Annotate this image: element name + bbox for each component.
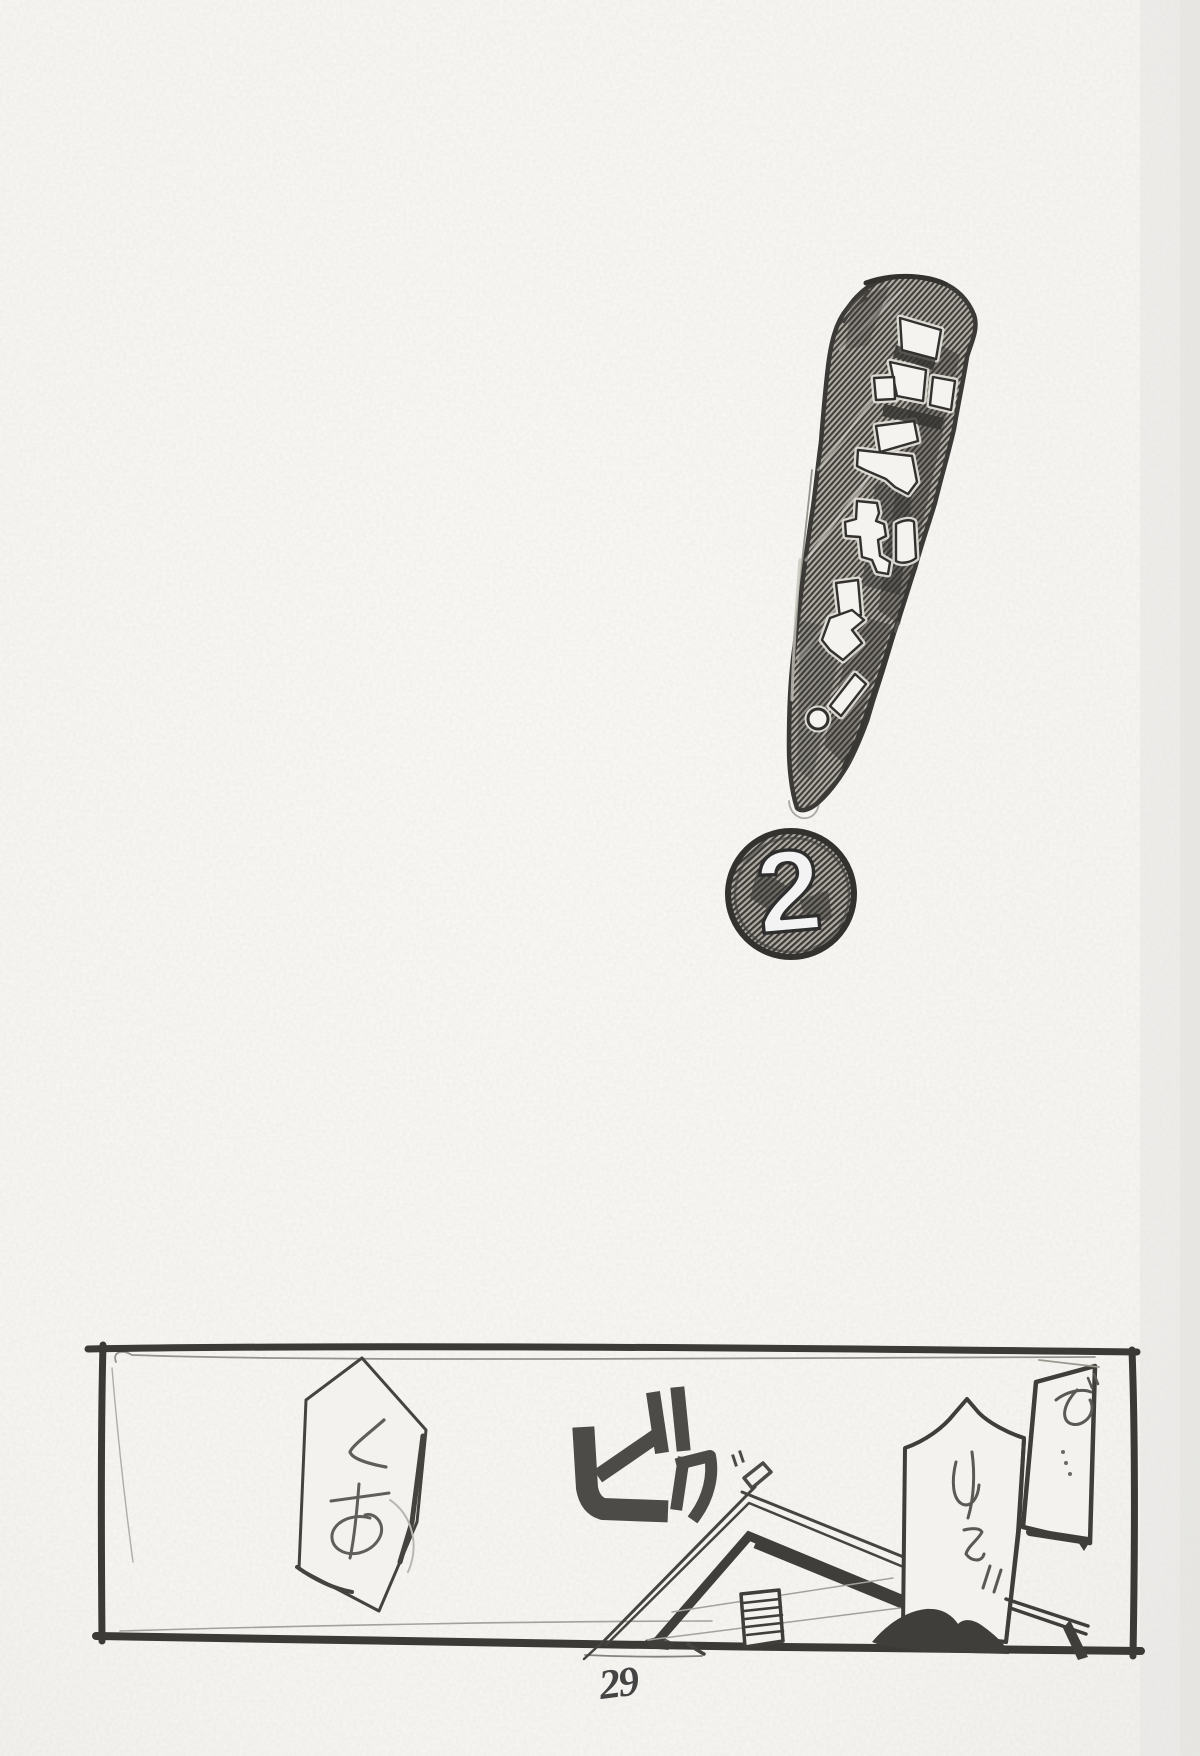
svg-text:29: 29 bbox=[596, 1658, 642, 1709]
svg-text:2: 2 bbox=[751, 823, 827, 958]
